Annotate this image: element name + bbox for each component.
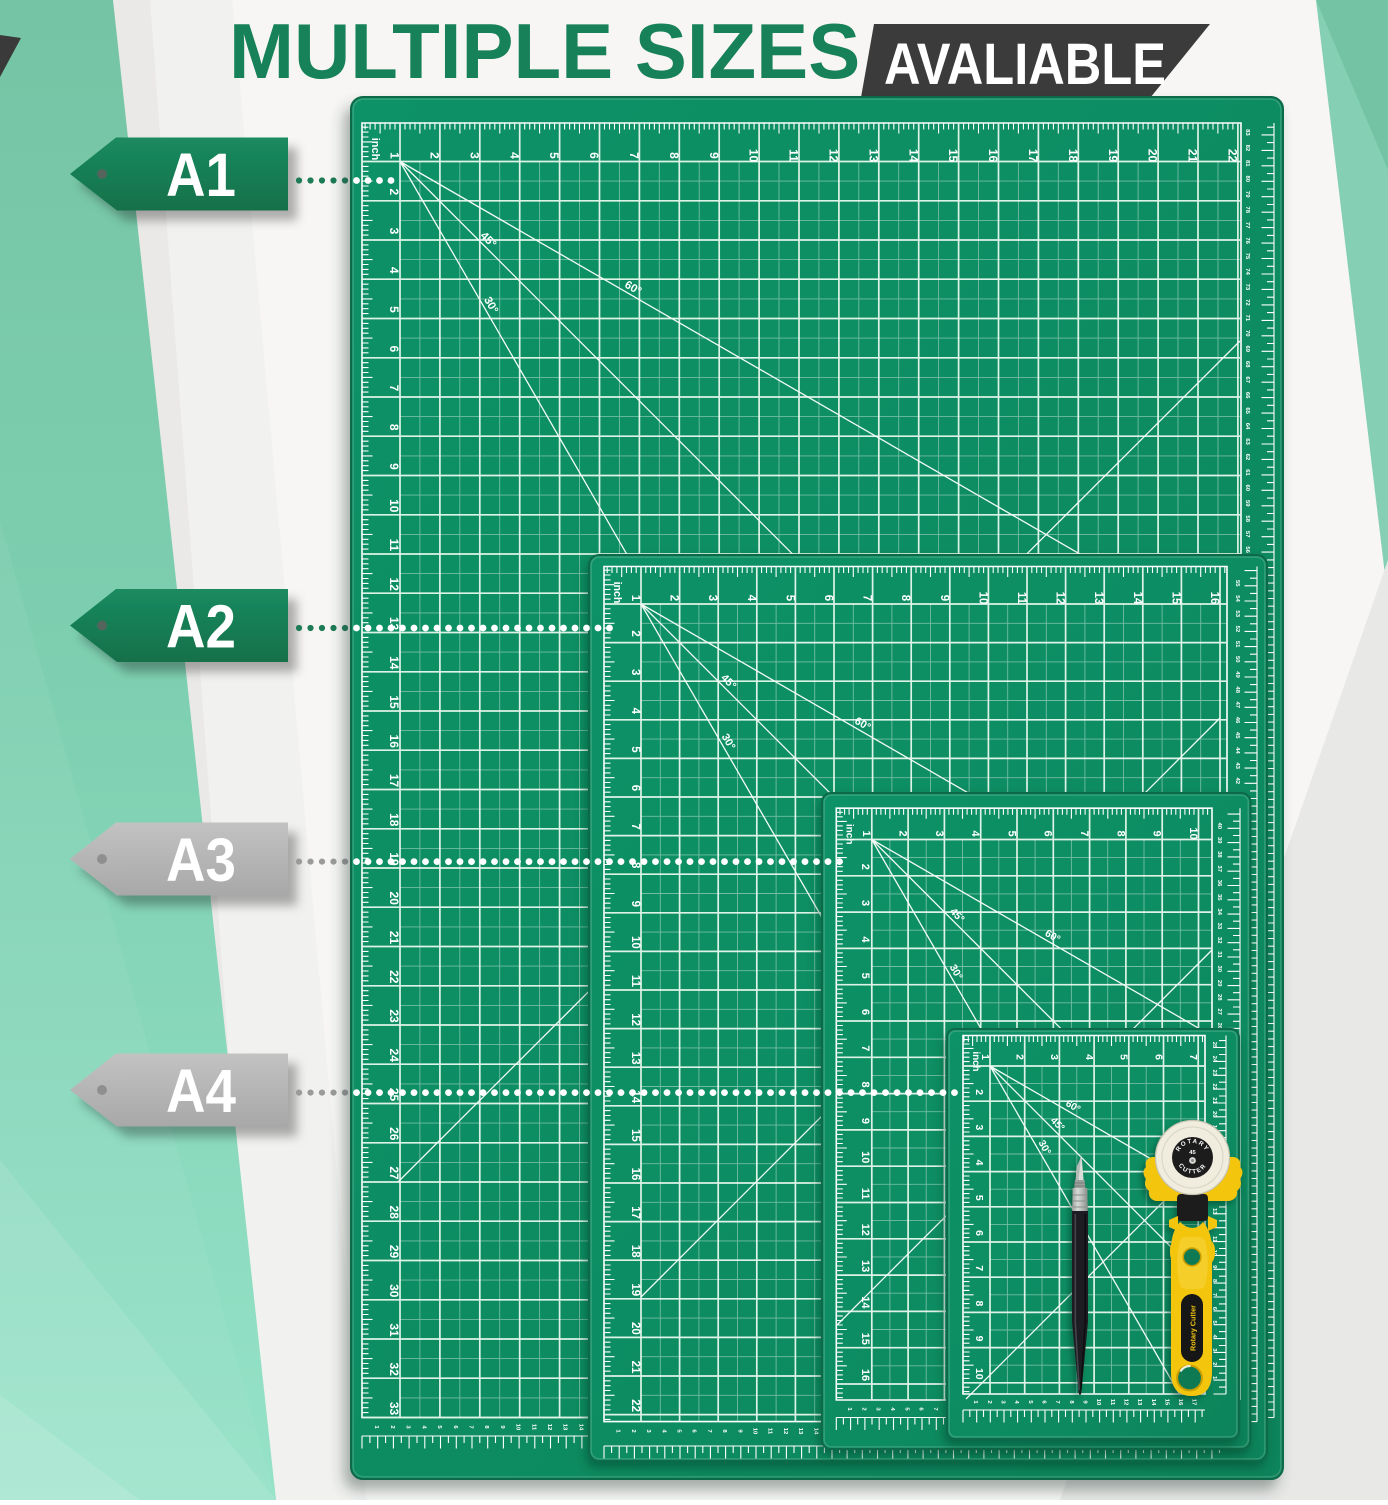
svg-text:40: 40 — [1216, 823, 1222, 830]
svg-text:4: 4 — [387, 267, 401, 274]
svg-text:49: 49 — [1234, 671, 1240, 678]
svg-text:72: 72 — [1244, 299, 1250, 306]
svg-text:inch: inch — [369, 138, 381, 161]
svg-text:16: 16 — [1177, 1399, 1183, 1406]
svg-text:7: 7 — [973, 1265, 985, 1271]
svg-text:4: 4 — [973, 1160, 985, 1166]
svg-text:3: 3 — [1048, 1054, 1060, 1060]
svg-text:10: 10 — [752, 1428, 758, 1435]
svg-text:50: 50 — [1234, 656, 1240, 663]
svg-text:15: 15 — [387, 695, 401, 709]
svg-text:4: 4 — [859, 936, 871, 943]
svg-text:17: 17 — [387, 774, 401, 788]
svg-text:52: 52 — [1234, 626, 1240, 633]
svg-text:32: 32 — [387, 1363, 401, 1377]
svg-text:11: 11 — [1015, 592, 1027, 605]
svg-text:38: 38 — [1216, 851, 1222, 858]
svg-text:11: 11 — [1109, 1399, 1115, 1406]
svg-text:15: 15 — [946, 149, 960, 163]
svg-text:47: 47 — [1234, 702, 1240, 709]
svg-text:6: 6 — [973, 1230, 985, 1236]
svg-text:6: 6 — [1152, 1054, 1164, 1060]
svg-text:10: 10 — [629, 936, 641, 949]
svg-text:16: 16 — [986, 149, 1000, 163]
svg-text:9: 9 — [938, 595, 950, 601]
svg-text:11: 11 — [787, 149, 801, 162]
svg-text:46: 46 — [1234, 717, 1240, 724]
svg-text:1: 1 — [629, 595, 641, 602]
svg-text:24: 24 — [387, 1049, 401, 1063]
svg-text:2: 2 — [1014, 1054, 1026, 1060]
svg-text:45: 45 — [1234, 732, 1240, 739]
svg-text:6: 6 — [859, 1009, 871, 1015]
svg-text:28: 28 — [387, 1206, 401, 1220]
svg-text:5: 5 — [547, 152, 561, 159]
svg-text:21: 21 — [387, 931, 401, 945]
svg-text:17: 17 — [629, 1206, 641, 1219]
svg-text:16: 16 — [387, 735, 401, 749]
svg-text:37: 37 — [1216, 865, 1222, 872]
svg-text:69: 69 — [1244, 346, 1250, 353]
svg-text:9: 9 — [1151, 830, 1163, 836]
svg-text:7: 7 — [1187, 1054, 1199, 1060]
svg-text:59: 59 — [1244, 500, 1250, 507]
svg-text:5: 5 — [629, 746, 641, 753]
svg-text:4: 4 — [745, 595, 757, 602]
svg-text:20: 20 — [629, 1322, 641, 1335]
svg-text:1: 1 — [860, 830, 872, 836]
svg-text:44: 44 — [1234, 747, 1240, 754]
svg-text:8: 8 — [387, 424, 401, 431]
svg-text:11: 11 — [530, 1424, 536, 1431]
svg-text:2: 2 — [668, 595, 680, 601]
svg-text:6: 6 — [822, 595, 834, 601]
svg-text:9: 9 — [859, 1118, 871, 1124]
svg-text:71: 71 — [1244, 315, 1250, 322]
svg-text:2: 2 — [897, 830, 909, 836]
svg-text:7: 7 — [627, 152, 641, 159]
svg-text:21: 21 — [1211, 1097, 1217, 1104]
svg-text:2: 2 — [973, 1089, 985, 1095]
svg-text:73: 73 — [1244, 284, 1250, 291]
svg-text:29: 29 — [1216, 980, 1222, 987]
svg-text:66: 66 — [1244, 392, 1250, 399]
svg-text:23: 23 — [1211, 1070, 1217, 1077]
svg-text:39: 39 — [1216, 837, 1222, 844]
svg-text:20: 20 — [387, 892, 401, 906]
svg-text:12: 12 — [859, 1224, 871, 1236]
svg-text:2: 2 — [629, 630, 641, 636]
svg-text:10: 10 — [387, 499, 401, 513]
svg-text:A3: A3 — [166, 826, 236, 894]
svg-text:9: 9 — [707, 152, 721, 159]
svg-text:8: 8 — [1114, 830, 1126, 836]
svg-text:54: 54 — [1234, 595, 1240, 602]
svg-text:4: 4 — [629, 708, 641, 715]
svg-text:A4: A4 — [166, 1057, 236, 1125]
svg-text:15: 15 — [1169, 592, 1181, 605]
svg-text:13: 13 — [859, 1260, 871, 1272]
svg-text:14: 14 — [1131, 592, 1143, 605]
svg-text:48: 48 — [1234, 686, 1240, 693]
svg-text:18: 18 — [387, 813, 401, 827]
svg-text:Rotary Cutter: Rotary Cutter — [1189, 1305, 1198, 1351]
svg-text:A1: A1 — [166, 141, 236, 209]
svg-text:27: 27 — [1216, 1008, 1222, 1015]
svg-text:51: 51 — [1234, 641, 1240, 648]
svg-text:10: 10 — [1095, 1399, 1101, 1406]
svg-text:56: 56 — [1244, 546, 1250, 553]
svg-text:14: 14 — [812, 1428, 818, 1435]
svg-text:79: 79 — [1244, 191, 1250, 198]
svg-text:31: 31 — [1216, 951, 1222, 958]
svg-text:4: 4 — [969, 830, 981, 837]
svg-text:9: 9 — [387, 463, 401, 470]
svg-text:35: 35 — [1216, 894, 1222, 901]
svg-text:60: 60 — [1244, 485, 1250, 492]
svg-text:3: 3 — [706, 595, 718, 601]
svg-text:36: 36 — [1216, 880, 1222, 887]
svg-text:10: 10 — [973, 1368, 985, 1380]
svg-text:8: 8 — [859, 1082, 871, 1088]
svg-text:8: 8 — [899, 595, 911, 602]
svg-text:30: 30 — [1216, 966, 1222, 973]
svg-text:3: 3 — [467, 152, 481, 159]
svg-text:6: 6 — [587, 152, 601, 159]
svg-text:75: 75 — [1244, 253, 1250, 260]
svg-text:12: 12 — [387, 578, 401, 592]
svg-text:3: 3 — [973, 1124, 985, 1130]
svg-text:12: 12 — [546, 1424, 552, 1431]
svg-text:13: 13 — [562, 1424, 568, 1431]
svg-text:3: 3 — [859, 900, 871, 906]
svg-text:4: 4 — [507, 152, 521, 159]
svg-text:53: 53 — [1234, 610, 1240, 617]
svg-text:5: 5 — [859, 973, 871, 979]
svg-text:16: 16 — [859, 1369, 871, 1381]
svg-text:68: 68 — [1244, 361, 1250, 368]
svg-text:18: 18 — [629, 1245, 641, 1258]
svg-text:78: 78 — [1244, 206, 1250, 213]
svg-text:inch: inch — [843, 824, 854, 845]
svg-text:21: 21 — [1186, 149, 1200, 163]
svg-text:10: 10 — [747, 149, 761, 163]
svg-text:15: 15 — [629, 1129, 641, 1142]
svg-text:33: 33 — [387, 1402, 401, 1416]
svg-text:22: 22 — [629, 1399, 641, 1412]
svg-text:14: 14 — [387, 656, 401, 670]
svg-text:3: 3 — [387, 228, 401, 235]
svg-text:6: 6 — [1042, 830, 1054, 836]
svg-text:7: 7 — [387, 385, 401, 392]
svg-text:12: 12 — [827, 149, 841, 163]
svg-text:8: 8 — [667, 152, 681, 159]
svg-text:12: 12 — [1054, 592, 1066, 605]
svg-text:16: 16 — [1208, 592, 1220, 605]
svg-text:7: 7 — [629, 823, 641, 829]
svg-text:13: 13 — [1136, 1399, 1142, 1406]
svg-text:9: 9 — [629, 901, 641, 907]
svg-text:11: 11 — [629, 975, 641, 988]
svg-text:58: 58 — [1244, 515, 1250, 522]
svg-text:10: 10 — [1187, 827, 1199, 839]
svg-text:22: 22 — [387, 970, 401, 984]
svg-text:61: 61 — [1244, 469, 1250, 476]
svg-text:5: 5 — [1118, 1054, 1130, 1060]
svg-text:76: 76 — [1244, 237, 1250, 244]
svg-text:7: 7 — [1078, 830, 1090, 836]
svg-text:43: 43 — [1234, 762, 1240, 769]
svg-text:5: 5 — [387, 306, 401, 313]
svg-text:83: 83 — [1244, 129, 1250, 136]
svg-text:5: 5 — [1005, 830, 1017, 836]
svg-text:45: 45 — [1189, 1150, 1196, 1156]
svg-text:16: 16 — [629, 1168, 641, 1181]
svg-text:10: 10 — [859, 1151, 871, 1163]
svg-text:10: 10 — [515, 1424, 521, 1431]
svg-text:24: 24 — [1211, 1056, 1217, 1063]
svg-text:15: 15 — [859, 1333, 871, 1345]
svg-text:18: 18 — [1066, 149, 1080, 163]
svg-text:28: 28 — [1216, 994, 1222, 1001]
svg-text:13: 13 — [1092, 592, 1104, 605]
svg-text:11: 11 — [767, 1428, 773, 1435]
svg-text:3: 3 — [629, 669, 641, 675]
svg-text:74: 74 — [1244, 268, 1250, 275]
svg-text:7: 7 — [861, 595, 873, 601]
svg-text:17: 17 — [1026, 149, 1040, 163]
svg-text:20: 20 — [1146, 149, 1160, 163]
svg-text:12: 12 — [782, 1428, 788, 1435]
svg-text:2: 2 — [428, 152, 442, 159]
svg-text:57: 57 — [1244, 531, 1250, 538]
svg-text:22: 22 — [1211, 1083, 1217, 1090]
svg-text:6: 6 — [387, 345, 401, 352]
svg-text:67: 67 — [1244, 376, 1250, 383]
svg-text:55: 55 — [1234, 580, 1240, 587]
svg-text:9: 9 — [973, 1336, 985, 1342]
svg-text:20: 20 — [1211, 1111, 1217, 1118]
svg-text:34: 34 — [1216, 908, 1222, 915]
svg-text:6: 6 — [629, 785, 641, 791]
svg-text:inch: inch — [611, 582, 623, 604]
svg-text:80: 80 — [1244, 176, 1250, 183]
svg-text:82: 82 — [1244, 145, 1250, 152]
svg-text:13: 13 — [629, 1052, 641, 1065]
svg-text:23: 23 — [387, 1009, 401, 1023]
svg-text:31: 31 — [387, 1323, 401, 1337]
svg-text:2: 2 — [387, 188, 401, 195]
svg-text:21: 21 — [629, 1361, 641, 1374]
svg-text:14: 14 — [1150, 1399, 1156, 1406]
svg-text:25: 25 — [1211, 1042, 1217, 1049]
svg-text:8: 8 — [973, 1300, 985, 1306]
svg-text:65: 65 — [1244, 407, 1250, 414]
svg-text:inch: inch — [970, 1052, 981, 1072]
svg-text:77: 77 — [1244, 222, 1250, 229]
svg-text:5: 5 — [973, 1195, 985, 1201]
svg-text:26: 26 — [387, 1127, 401, 1141]
svg-text:14: 14 — [859, 1296, 871, 1309]
svg-text:2: 2 — [859, 864, 871, 870]
svg-text:19: 19 — [629, 1283, 641, 1296]
svg-text:33: 33 — [1216, 923, 1222, 930]
svg-text:13: 13 — [866, 149, 880, 163]
svg-text:A2: A2 — [166, 593, 236, 661]
svg-text:30: 30 — [387, 1284, 401, 1298]
svg-text:7: 7 — [859, 1045, 871, 1051]
svg-text:17: 17 — [1191, 1399, 1197, 1406]
svg-text:42: 42 — [1234, 778, 1240, 785]
svg-text:5: 5 — [783, 595, 795, 602]
svg-text:14: 14 — [906, 149, 920, 163]
svg-text:15: 15 — [1163, 1399, 1169, 1406]
svg-text:12: 12 — [1122, 1399, 1128, 1406]
svg-text:22: 22 — [1226, 149, 1240, 163]
svg-text:1: 1 — [388, 152, 402, 159]
svg-text:3: 3 — [933, 830, 945, 836]
svg-text:MULTIPLE SIZES: MULTIPLE SIZES — [229, 7, 860, 95]
svg-text:13: 13 — [1211, 1208, 1217, 1215]
svg-text:62: 62 — [1244, 454, 1250, 461]
svg-text:32: 32 — [1216, 937, 1222, 944]
svg-text:70: 70 — [1244, 330, 1250, 337]
svg-text:11: 11 — [387, 539, 401, 552]
svg-text:19: 19 — [1106, 149, 1120, 163]
svg-text:27: 27 — [387, 1166, 401, 1180]
svg-text:63: 63 — [1244, 438, 1250, 445]
svg-text:81: 81 — [1244, 160, 1250, 167]
svg-text:12: 12 — [629, 1013, 641, 1026]
svg-text:11: 11 — [859, 1188, 871, 1200]
svg-text:14: 14 — [577, 1424, 583, 1431]
svg-text:10: 10 — [976, 592, 988, 605]
svg-text:4: 4 — [1083, 1054, 1095, 1060]
svg-text:29: 29 — [387, 1245, 401, 1259]
svg-text:13: 13 — [797, 1428, 803, 1435]
svg-text:AVALIABLE: AVALIABLE — [884, 32, 1166, 97]
svg-text:64: 64 — [1244, 423, 1250, 430]
